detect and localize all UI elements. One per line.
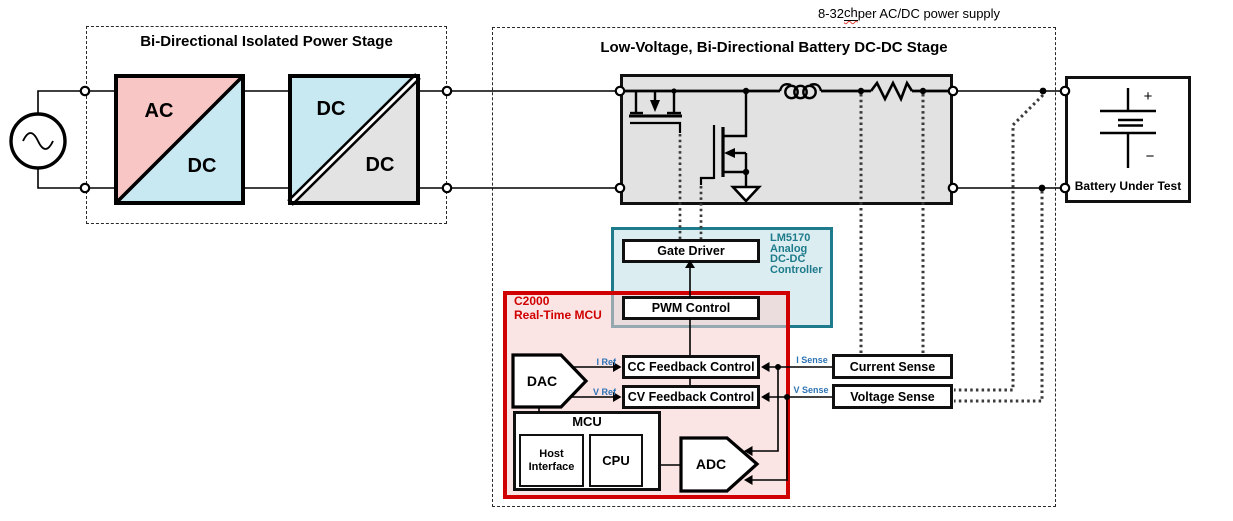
c2000-label: C2000 Real-Time MCU [514, 295, 602, 322]
cc-feedback-box [622, 355, 760, 379]
misspelled-word: ch [844, 5, 858, 20]
battery-test-block-diagram: 8-32 ch per AC/DC power supply Bi-Direct… [0, 0, 1233, 521]
isolated-power-stage-region [86, 26, 447, 224]
voltage-sense-box [832, 384, 953, 409]
gate-driver-box [622, 239, 760, 263]
pwm-control-box [622, 296, 760, 320]
channel-count-note: 8-32 ch per AC/DC power supply [781, 5, 1037, 21]
power-stage-box [620, 74, 953, 205]
host-interface-box [519, 434, 584, 487]
cv-feedback-box [622, 385, 760, 409]
sine-wave-icon [23, 133, 53, 149]
current-sense-box [832, 354, 953, 379]
cpu-box [589, 434, 643, 487]
lm5170-label: LM5170 Analog DC-DC Controller [770, 233, 823, 275]
battery-under-test-box [1065, 76, 1191, 203]
